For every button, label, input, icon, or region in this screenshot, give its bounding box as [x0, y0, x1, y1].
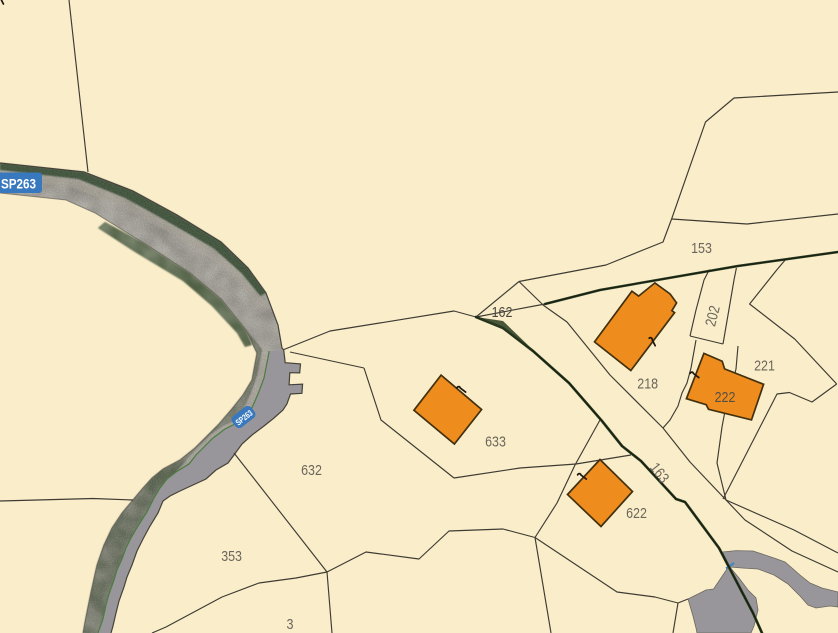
- svg-text:SP263: SP263: [1, 177, 36, 192]
- svg-text:222: 222: [715, 389, 736, 406]
- svg-text:353: 353: [221, 548, 242, 565]
- svg-text:622: 622: [626, 505, 647, 522]
- svg-text:3: 3: [287, 616, 294, 633]
- svg-text:153: 153: [691, 240, 712, 257]
- svg-text:218: 218: [637, 376, 658, 393]
- svg-text:632: 632: [301, 462, 322, 479]
- svg-text:221: 221: [754, 358, 775, 375]
- svg-text:633: 633: [485, 434, 506, 451]
- svg-text:162: 162: [492, 304, 513, 321]
